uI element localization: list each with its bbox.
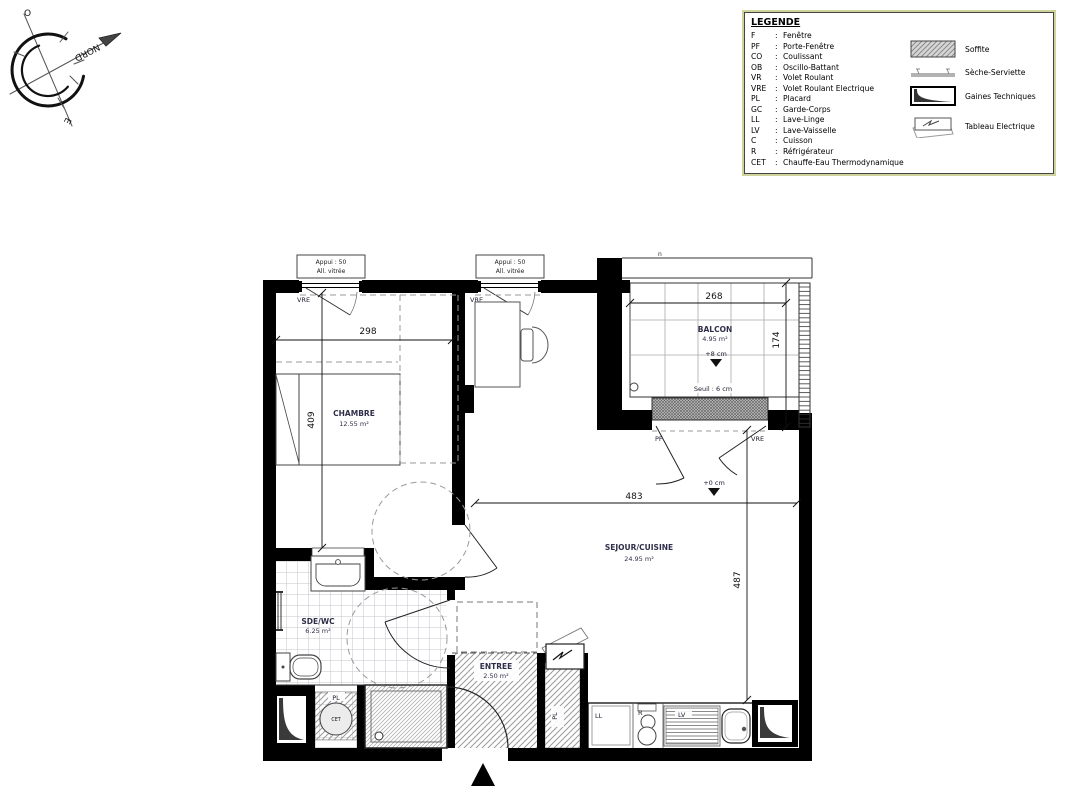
chambre-window: Appui : 50 All. vitrée VRE [295, 255, 366, 315]
legend-label: Placard [783, 94, 811, 105]
legend-label: Porte-Fenêtre [783, 42, 834, 53]
balcony-drain [630, 383, 638, 391]
kitchen-sink [722, 709, 750, 743]
legend-abbr: CET [751, 158, 775, 169]
seche-serviette-icon [909, 66, 957, 78]
legend-sep: : [775, 52, 783, 63]
soffite-dashed-outline [457, 602, 537, 652]
compass-west-label: O [24, 9, 31, 19]
soffite-swatch-icon [909, 39, 957, 59]
lv-label: LV [678, 711, 686, 719]
r-label: R [638, 709, 643, 717]
room-chambre-area: 12.55 m² [339, 420, 369, 428]
legend-row: CO:Coulissant [751, 52, 909, 63]
legend-row: VR:Volet Roulant [751, 73, 909, 84]
legend-abbr: OB [751, 63, 775, 74]
legend-abbr: LV [751, 126, 775, 137]
legend-abbr: F [751, 31, 775, 42]
room-sejour-name: SEJOUR/CUISINE [605, 543, 673, 552]
bed [276, 374, 400, 465]
level-marker [708, 488, 720, 496]
dim-balcon-height: 174 [772, 331, 782, 348]
legend-symbols: Soffite Sèche-Serviette Gaines Technique… [909, 31, 1047, 168]
balcony-upper-band [622, 258, 812, 278]
legend-sep: : [775, 42, 783, 53]
cet-label: CET [331, 717, 340, 723]
legend-title: LEGENDE [751, 17, 1047, 28]
legend-row: PL:Placard [751, 94, 909, 105]
balcony-railing [799, 283, 810, 427]
legend-frame: LEGENDE F:Fenêtre PF:Porte-Fenêtre CO:Co… [744, 12, 1054, 174]
legend-sep: : [775, 63, 783, 74]
entrance-arrow [471, 763, 495, 786]
legend-label: Volet Roulant Electrique [783, 84, 874, 95]
legend-sep: : [775, 136, 783, 147]
north-tick-label: n [658, 251, 662, 258]
pf-label: PF [655, 435, 663, 443]
legend-label: Fenêtre [783, 31, 812, 42]
soffite-band [652, 398, 768, 420]
tableau-electrique-icon [909, 114, 957, 138]
legend-label: Coulissant [783, 52, 822, 63]
washbasin [311, 548, 365, 591]
shower [365, 685, 447, 748]
legend-abbr: GC [751, 105, 775, 116]
legend-symbol-label: Soffite [965, 45, 989, 54]
legend-label: Réfrigérateur [783, 147, 833, 158]
legend-row: OB:Oscillo-Battant [751, 63, 909, 74]
window-allege-label: All. vitrée [496, 268, 525, 275]
legend-label: Oscillo-Battant [783, 63, 839, 74]
legend-sep: : [775, 73, 783, 84]
toilet [276, 653, 321, 681]
room-entree-area: 2.50 m² [483, 672, 509, 680]
dim-sejour-width: 483 [625, 492, 642, 502]
vre-label-balcon: VRE [751, 435, 764, 443]
legend-row: VRE:Volet Roulant Electrique [751, 84, 909, 95]
legend-symbol-row: Gaines Techniques [909, 85, 1047, 107]
legend-sep: : [775, 31, 783, 42]
legend-row: C:Cuisson [751, 136, 909, 147]
legend-label: Lave-Linge [783, 115, 824, 126]
legend-label: Garde-Corps [783, 105, 831, 116]
legend-abbr: C [751, 136, 775, 147]
legend-panel: LEGENDE F:Fenêtre PF:Porte-Fenêtre CO:Co… [742, 10, 1056, 176]
level-balcon-label: +8 cm [705, 350, 727, 358]
dim-balcon-width: 268 [705, 292, 722, 302]
legend-abbr: VRE [751, 84, 775, 95]
legend-symbol-label: Gaines Techniques [965, 92, 1036, 101]
legend-symbol-label: Tableau Electrique [965, 122, 1035, 131]
window-allege-label: All. vitrée [317, 268, 346, 275]
legend-row: CET:Chauffe-Eau Thermodynamique [751, 158, 909, 169]
legend-abbr: CO [751, 52, 775, 63]
legend-sep: : [775, 115, 783, 126]
cet-water-heater: CET [320, 703, 352, 735]
legend-row: F:Fenêtre [751, 31, 909, 42]
legend-symbol-row: Sèche-Serviette [909, 66, 1047, 78]
legend-label: Volet Roulant [783, 73, 833, 84]
desk [475, 302, 520, 387]
legend-sep: : [775, 158, 783, 169]
compass-north-label: NORD [73, 41, 102, 62]
vre-label-chambre: VRE [297, 296, 310, 304]
room-balcon-area: 4.95 m² [702, 335, 728, 343]
legend-abbr: PL [751, 94, 775, 105]
window-appui-label: Appui : 50 [495, 259, 526, 266]
legend-row: LL:Lave-Linge [751, 115, 909, 126]
room-sde-area: 6.25 m² [305, 627, 331, 635]
room-balcon-name: BALCON [698, 325, 732, 334]
room-chambre-name: CHAMBRE [333, 409, 375, 418]
compass-rose: NORD O E [10, 9, 121, 126]
legend-sep: : [775, 126, 783, 137]
compass-east-label: E [61, 116, 73, 126]
tableau-electrique [542, 628, 588, 669]
legend-sep: : [775, 105, 783, 116]
floorplan-page: NORD O E [0, 0, 1070, 800]
gaines-techniques-icon [909, 85, 957, 107]
legend-label: Lave-Vaisselle [783, 126, 836, 137]
legend-abbreviations: F:Fenêtre PF:Porte-Fenêtre CO:Coulissant… [751, 31, 909, 168]
dim-chambre-width: 298 [359, 327, 376, 337]
dim-chambre-height: 409 [307, 411, 317, 428]
legend-abbr: R [751, 147, 775, 158]
legend-label: Chauffe-Eau Thermodynamique [783, 158, 904, 169]
gaines-box-left [272, 691, 311, 748]
level-sejour-label: +0 cm [703, 479, 725, 487]
pl-label-sde: PL [332, 694, 340, 702]
ll-label: LL [595, 712, 603, 720]
legend-sep: : [775, 94, 783, 105]
hob-plate [638, 727, 656, 745]
legend-row: GC:Garde-Corps [751, 105, 909, 116]
legend-abbr: LL [751, 115, 775, 126]
legend-label: Cuisson [783, 136, 813, 147]
legend-symbol-row: Tableau Electrique [909, 114, 1047, 138]
legend-row: LV:Lave-Vaisselle [751, 126, 909, 137]
gaines-box-right [752, 700, 798, 747]
legend-symbol-label: Sèche-Serviette [965, 68, 1025, 77]
legend-abbr: PF [751, 42, 775, 53]
legend-row: PF:Porte-Fenêtre [751, 42, 909, 53]
legend-symbol-row: Soffite [909, 39, 1047, 59]
pl-label-entree: PL [551, 712, 559, 720]
legend-sep: : [775, 147, 783, 158]
legend-row: R:Réfrigérateur [751, 147, 909, 158]
legend-sep: : [775, 84, 783, 95]
dim-sejour-height: 487 [733, 571, 743, 588]
room-sde-name: SDE/WC [301, 617, 335, 626]
chair [521, 327, 548, 363]
room-sejour-area: 24.95 m² [624, 555, 654, 563]
window-appui-label: Appui : 50 [316, 259, 347, 266]
legend-abbr: VR [751, 73, 775, 84]
seuil-label: Seuil : 6 cm [694, 385, 732, 393]
room-entree-name: ENTREE [480, 662, 513, 671]
